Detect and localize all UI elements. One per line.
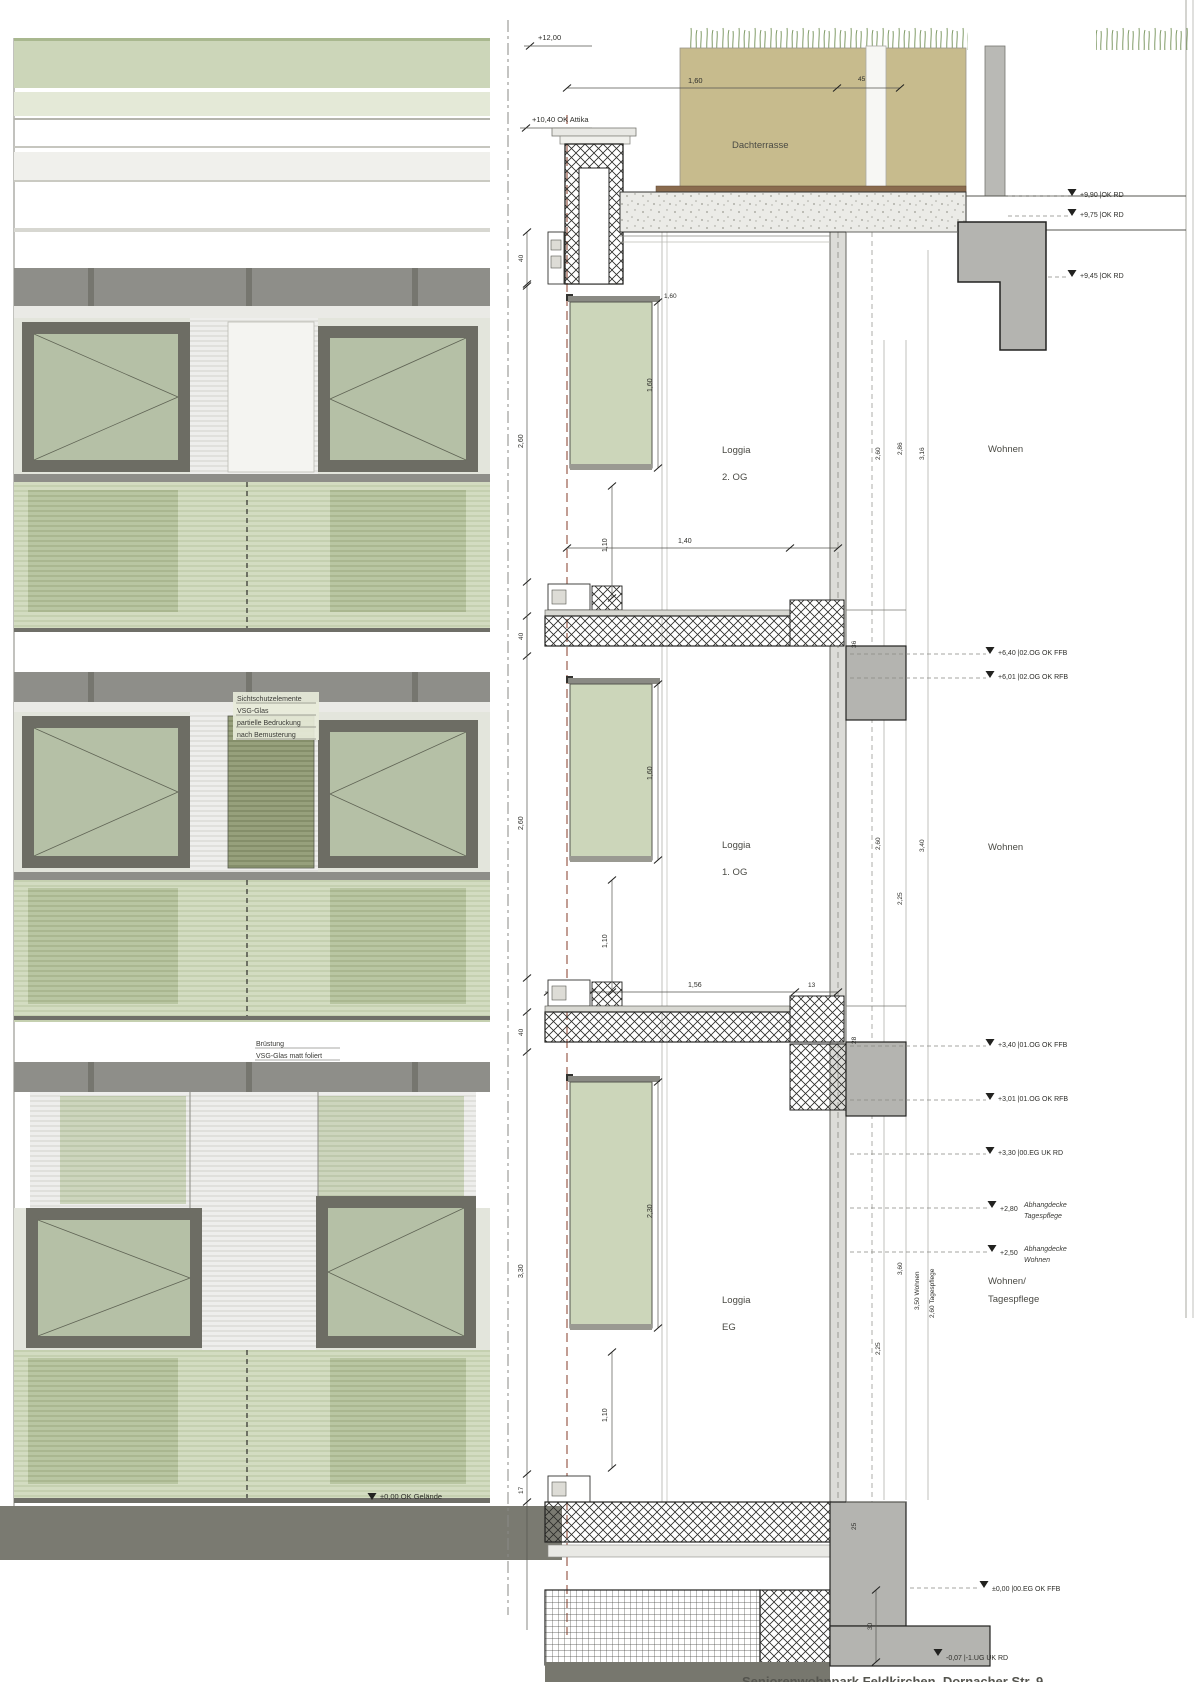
terrace-wall <box>985 46 1005 196</box>
level-975: +9,75 |OK RD <box>1080 212 1124 219</box>
room-label-loggia-2og-2: 2. OG <box>722 472 747 483</box>
dim-13: 13 <box>808 982 816 989</box>
level-330: +3,30 |00.EG UK RD <box>998 1150 1063 1157</box>
dim-left-1og: 2,60 <box>518 816 525 830</box>
dim-156: 1,56 <box>688 982 702 989</box>
level-945: +9,45 |OK RD <box>1080 273 1124 280</box>
level-340: +3,40 |01.OG OK FFB <box>998 1042 1068 1049</box>
dim-2og-316: 3,16 <box>919 447 926 460</box>
privacy-note-line4: nach Bemusterung <box>237 732 296 739</box>
window-glass <box>328 1208 464 1336</box>
dim-door-eg: 1,10 <box>602 1408 609 1422</box>
dim-parapet-40: 40 <box>518 254 525 262</box>
concrete-slab <box>545 1012 831 1042</box>
dim-left-17: 17 <box>518 1486 525 1494</box>
level-000: ±0,00 |00.EG OK FFB <box>992 1586 1061 1593</box>
level-marker-triangle <box>1068 270 1077 277</box>
room-label-wohnen-eg-2: Tagespflege <box>988 1294 1039 1305</box>
level-marker-triangle <box>986 1039 995 1046</box>
attika-line-3 <box>14 180 490 182</box>
dim-1og-225: 2,25 <box>897 892 904 905</box>
roof-terrace-deck <box>680 48 966 194</box>
roof-slab-concrete <box>620 192 966 232</box>
dim-eg-260-tagespflege: 2,60 Tagespflege <box>929 1268 936 1318</box>
parapet-note-line1: Brüstung <box>256 1041 284 1048</box>
facade-floor-2og <box>14 268 490 632</box>
facade-and-section-drawing: Sichtschutzelemente VSG-Glas partielle B… <box>0 0 1200 1682</box>
room-label-wohnen-1og: Wohnen <box>988 842 1023 853</box>
dim-1og-260: 2,60 <box>875 837 882 850</box>
room-label-loggia-2og-1: Loggia <box>722 445 751 456</box>
interior-beam <box>846 1042 906 1116</box>
level-marker-triangle <box>988 1201 997 1208</box>
drawing-title: Seniorenwohnpark Feldkirchen, Dornacher … <box>742 1674 1043 1682</box>
level-marker-triangle <box>1068 209 1077 216</box>
window-glass <box>38 1220 190 1336</box>
interior-beam <box>846 646 906 720</box>
loggia-glass-balustrade <box>570 302 652 468</box>
dim-left-eg: 3,30 <box>518 1264 525 1278</box>
loggia-1og: 1,60 Loggia 1. OG Wohnen 1,10 90 1,56 13… <box>544 676 1023 996</box>
window-glass <box>34 334 178 460</box>
room-label-loggia-1og-2: 1. OG <box>722 867 747 878</box>
room-label-loggia-eg-2: EG <box>722 1322 736 1333</box>
facade-joint-line <box>14 228 490 232</box>
level-marker-triangle <box>988 1245 997 1252</box>
concrete-slab <box>545 1502 831 1542</box>
attika-parapet-detail: 40 <box>518 128 636 288</box>
terrace-plants <box>686 26 968 50</box>
adjacent-structure-mass <box>958 222 1046 350</box>
insulated-wall-stub <box>790 1044 846 1110</box>
ceiling-note-tagespflege-1: Abhangdecke <box>1023 1202 1067 1209</box>
privacy-note-line3: partielle Bedruckung <box>237 720 301 727</box>
basement-slab-grid <box>545 1590 760 1665</box>
concrete-slab <box>545 616 831 646</box>
dim-glass-eg: 2,30 <box>647 1204 654 1218</box>
level-marker-triangle <box>1068 189 1077 196</box>
dim-slab-36: 36 <box>851 640 858 648</box>
window-glass <box>34 728 178 856</box>
dim-basement-30: 30 <box>867 1622 874 1630</box>
loggia-glass-balustrade <box>570 1082 652 1328</box>
dim-1og-340: 3,40 <box>919 839 926 852</box>
dim-door-1og: 1,10 <box>602 934 609 948</box>
parapet-note-line2: VSG-Glas matt foliert <box>256 1053 322 1060</box>
ground-floor-slab: 25 30 ±0,00 |00.EG OK FFB -0,07 |-1.UG U… <box>545 1476 1061 1682</box>
ceiling-note-wohnen-2: Wohnen <box>1024 1257 1050 1264</box>
facade-elevation: Sichtschutzelemente VSG-Glas partielle B… <box>0 38 562 1560</box>
level-601: +6,01 |02.OG OK RFB <box>998 674 1068 681</box>
room-label-wohnen-2og: Wohnen <box>988 444 1023 455</box>
dim-40-2og: 40 <box>518 632 525 640</box>
dim-glass-1og: 1,60 <box>647 766 654 780</box>
dim-slab-25: 25 <box>851 1522 858 1530</box>
dim-2og-260: 2,60 <box>875 447 882 460</box>
level-640: +6,40 |02.OG OK FFB <box>998 650 1068 657</box>
terrace-label: Dachterrasse <box>732 140 789 151</box>
level-250: +2,50 <box>1000 1250 1018 1257</box>
attika-line <box>14 118 490 120</box>
window-glass <box>330 732 466 856</box>
dim-glass-2og: 1,60 <box>647 378 654 392</box>
loggia-eg: 2,30 Loggia EG Wohnen/ Tagespflege 1,10 … <box>566 1074 1039 1472</box>
dim-eg-350-wohnen: 3,50 Wohnen <box>914 1271 921 1310</box>
facade-privacy-note: Sichtschutzelemente VSG-Glas partielle B… <box>233 692 319 740</box>
dim-eg-360: 3,60 <box>897 1262 904 1275</box>
ground-level-label: ±0,00 OK Gelände <box>380 1492 442 1501</box>
roof-band-edge <box>14 38 490 41</box>
ground-band <box>0 1506 562 1560</box>
window-glass <box>330 338 466 460</box>
level-marker-triangle <box>986 1093 995 1100</box>
level-280: +2,80 <box>1000 1206 1018 1213</box>
ceiling-note-tagespflege-2: Tagespflege <box>1024 1213 1062 1220</box>
dim-left-2og: 2,60 <box>518 434 525 448</box>
level-m007: -0,07 |-1.UG UK RD <box>946 1655 1008 1662</box>
dim-eg-225: 2,25 <box>875 1342 882 1355</box>
building-section: +12,00 +10,40 OK Attika Dachterrasse 1,6… <box>508 0 1193 1682</box>
dim-wall-45: 45 <box>858 76 866 83</box>
terrace-door-slot <box>866 46 886 196</box>
roof-band-light <box>14 92 490 116</box>
level-marker-triangle <box>986 671 995 678</box>
dim-40-1og: 40 <box>518 1028 525 1036</box>
roof-green-band <box>14 38 490 88</box>
terrace-plants-right <box>1096 26 1188 50</box>
dim-2og-286: 2,86 <box>897 442 904 455</box>
level-marker-triangle <box>986 1147 995 1154</box>
architectural-drawing-page: Sichtschutzelemente VSG-Glas partielle B… <box>0 0 1200 1682</box>
room-label-loggia-1og-1: Loggia <box>722 840 751 851</box>
privacy-note-line2: VSG-Glas <box>237 708 269 715</box>
loggia-2og: 1,60 1,60 Loggia 2. OG Wohnen 1,10 1,40 … <box>563 293 1023 602</box>
dim-terrace-width: 1,60 <box>688 76 703 85</box>
level-marker-triangle <box>980 1581 989 1588</box>
dim-160-top: 1,60 <box>664 293 677 300</box>
dim-door-2og: 1,10 <box>602 538 609 552</box>
ceiling-note-wohnen-1: Abhangdecke <box>1023 1246 1067 1253</box>
dim-140: 1,40 <box>678 538 692 545</box>
level-990: +9,90 |OK RD <box>1080 192 1124 199</box>
room-label-wohnen-eg-1: Wohnen/ <box>988 1276 1026 1287</box>
attika-line-2 <box>14 146 490 148</box>
level-301: +3,01 |01.OG OK RFB <box>998 1096 1068 1103</box>
level-12-00: +12,00 <box>538 33 561 42</box>
level-marker-triangle <box>986 647 995 654</box>
facade-floor-eg <box>14 1062 490 1503</box>
dim-slab-28: 28 <box>851 1036 858 1044</box>
privacy-note-line1: Sichtschutzelemente <box>237 696 302 703</box>
attika-band <box>14 152 490 182</box>
left-dim-chain: 2,60 2,60 3,30 17 <box>518 283 531 1631</box>
interior-wall-mass <box>830 1502 906 1626</box>
room-label-loggia-eg-1: Loggia <box>722 1295 751 1306</box>
loggia-glass-balustrade <box>570 684 652 860</box>
level-attika: +10,40 OK Attika <box>532 115 589 124</box>
